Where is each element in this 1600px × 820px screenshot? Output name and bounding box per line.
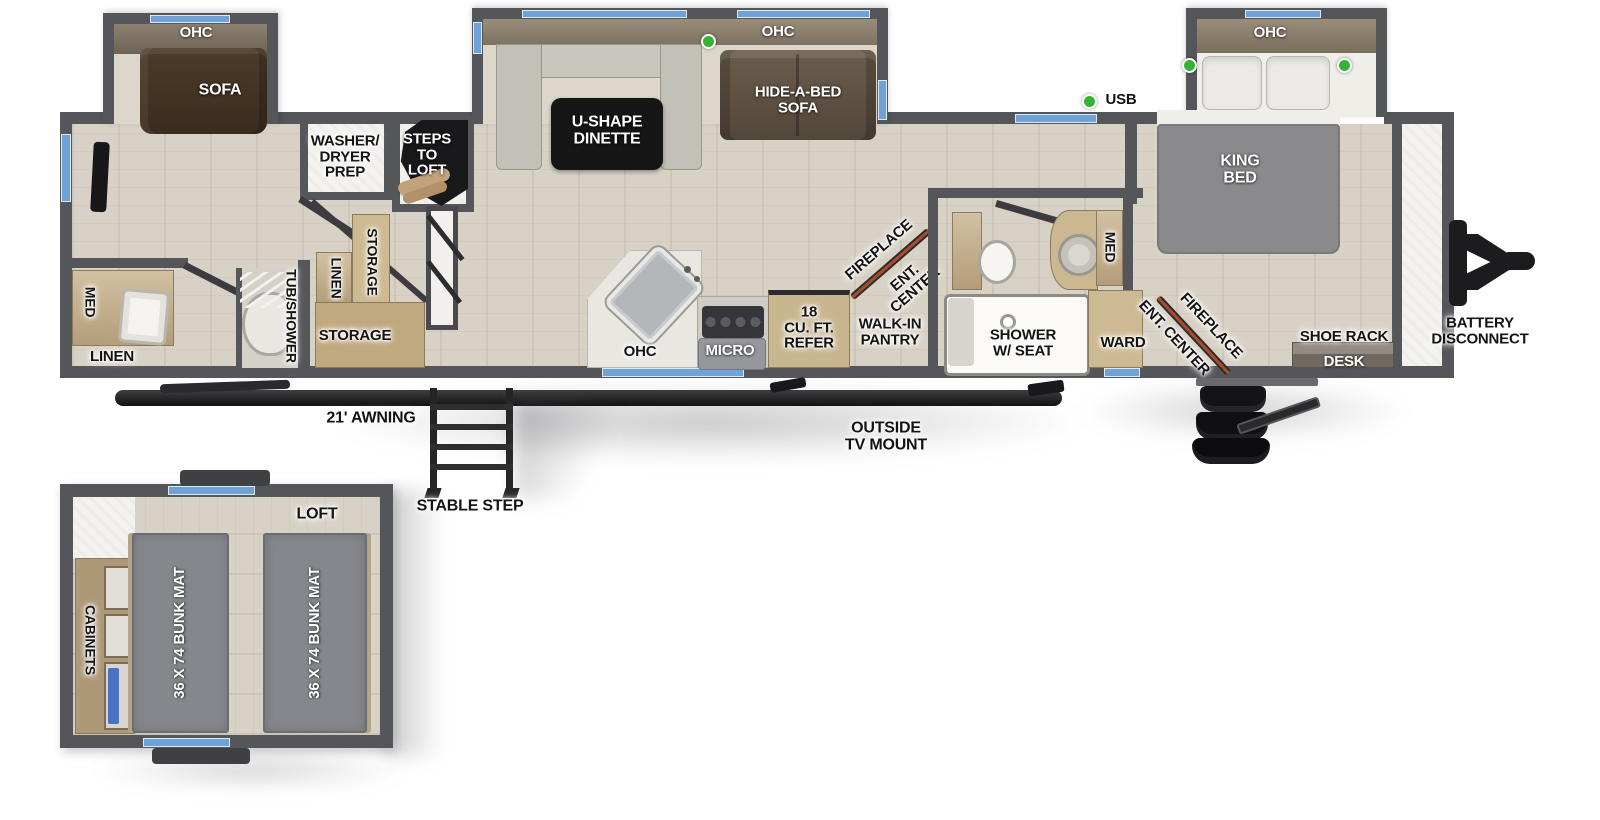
storage-v-label: STORAGE xyxy=(365,228,380,296)
front-interior-wall xyxy=(1392,124,1402,366)
bedroom-partition-wall xyxy=(1125,124,1137,204)
top-wall-seg4 xyxy=(1384,112,1454,124)
shower-seat xyxy=(948,298,974,366)
mid-bath-sink xyxy=(1058,234,1100,276)
outside-tv-label: OUTSIDE TV MOUNT xyxy=(845,420,927,453)
linen-v-label: LINEN xyxy=(329,257,344,298)
top-wall-window xyxy=(1015,114,1097,123)
loft-shadow-bottom xyxy=(90,750,410,790)
cooktop xyxy=(702,306,764,338)
kitchen-ohc-label: OHC xyxy=(624,344,657,360)
stable-step-rung4 xyxy=(430,464,513,470)
hitch-coupler xyxy=(1505,252,1535,270)
kitchen-faucet2 xyxy=(694,276,700,282)
ward-cabinet xyxy=(1088,290,1143,368)
mid-bath-left-wall xyxy=(928,188,938,372)
entry-step-platform xyxy=(1196,378,1318,386)
dinette-bench-left xyxy=(496,44,542,170)
battery-disconnect-label: BATTERY DISCONNECT xyxy=(1431,315,1528,346)
dinette-side-window-left xyxy=(473,22,482,54)
hide-a-bed-label: HIDE-A-BED SOFA xyxy=(755,84,841,115)
rear-bath-med-label: MED xyxy=(83,287,98,318)
micro-label: MICRO xyxy=(706,343,755,359)
cabinets-label: CABINETS xyxy=(83,605,98,675)
pantry-label: WALK-IN PANTRY xyxy=(859,316,922,347)
usb-led-dot xyxy=(1082,94,1097,109)
toilet-counter xyxy=(952,212,982,290)
dinette-ohc-label: OHC xyxy=(762,24,795,40)
dinette-table-label: U-SHAPE DINETTE xyxy=(572,114,643,147)
med2-label: MED xyxy=(1103,232,1118,263)
shower-seat-label: SHOWER W/ SEAT xyxy=(990,327,1056,358)
usb-label: USB xyxy=(1105,92,1136,108)
king-bed xyxy=(1157,124,1340,254)
rear-bath-linen-label: LINEN xyxy=(90,349,134,365)
sofa-slide-ohc-label: OHC xyxy=(180,25,213,41)
led-dot-bed-right xyxy=(1337,58,1352,73)
sofa-label: SOFA xyxy=(199,83,242,100)
dinette-window-2 xyxy=(737,10,870,18)
dinette-bench-right xyxy=(660,44,702,170)
loft-cabinet-shelf2 xyxy=(104,614,132,658)
sofa-slide-window xyxy=(150,15,230,23)
loft-cabinet-shelf1 xyxy=(104,566,132,610)
tongue-jack xyxy=(1449,220,1467,306)
king-pillow-right xyxy=(1266,56,1330,110)
dinette-ohc-cabinet xyxy=(483,19,877,45)
washer-dryer-label: WASHER/ DRYER PREP xyxy=(311,134,380,181)
awning-label: 21' AWNING xyxy=(326,411,415,428)
ward-label: WARD xyxy=(1100,335,1145,351)
steps-to-loft-label: STEPS TO LOFT xyxy=(403,132,451,179)
led-dot-dinette xyxy=(701,34,716,49)
king-ohc-label: OHC xyxy=(1254,25,1287,41)
stable-step-rung3 xyxy=(430,444,513,450)
rear-bath-top-wall xyxy=(72,258,188,268)
shoe-rack-label: SHOE RACK xyxy=(1300,329,1388,345)
loft-cabinet-blue-door xyxy=(108,668,119,724)
stable-step-rung2 xyxy=(430,424,513,430)
loft-window-top xyxy=(168,486,255,495)
bunk2-label: 36 X 74 BUNK MAT xyxy=(307,567,323,699)
dinette-window-1 xyxy=(522,10,687,18)
king-bed-label: KING BED xyxy=(1220,153,1259,186)
left-wall-window xyxy=(61,134,71,202)
loft-vent-bottom xyxy=(152,748,250,764)
loft-window-bottom xyxy=(143,738,230,747)
loft-shadow xyxy=(388,490,444,756)
led-dot-bed-left xyxy=(1182,58,1197,73)
rear-bath-right-wall xyxy=(298,260,310,368)
stable-step-label: STABLE STEP xyxy=(417,499,524,516)
rv-floorplan: OHC SOFA U-SHAPE DINETTE OHC HIDE-A-BED … xyxy=(0,0,1600,820)
rear-bath-sink xyxy=(118,288,171,346)
refer-label: 18 CU. FT. REFER xyxy=(784,305,834,352)
toilet xyxy=(978,240,1016,284)
entry-step-1 xyxy=(1200,386,1266,412)
loft-vent-top xyxy=(180,470,270,486)
dinette-side-window-right xyxy=(878,80,887,120)
stable-step-rung1 xyxy=(430,404,513,410)
bath-window xyxy=(1104,368,1140,377)
king-pillow-left xyxy=(1202,56,1262,110)
bunk1-label: 36 X 74 BUNK MAT xyxy=(172,567,188,699)
desk-label: DESK xyxy=(1324,354,1365,370)
mid-bath-top-wall xyxy=(928,188,1143,198)
tub-shower-label: TUB/SHOWER xyxy=(284,269,299,363)
loft-label: LOFT xyxy=(297,507,338,524)
top-wall-seg1 xyxy=(60,112,106,124)
mid-bath-right-wall xyxy=(1123,198,1133,290)
loft-landing xyxy=(73,497,135,559)
stable-step-shadow xyxy=(515,400,625,500)
storage-label: STORAGE xyxy=(319,328,392,344)
entry-step-3 xyxy=(1192,438,1270,464)
king-slide-window xyxy=(1245,10,1321,18)
kitchen-faucet xyxy=(684,266,691,273)
